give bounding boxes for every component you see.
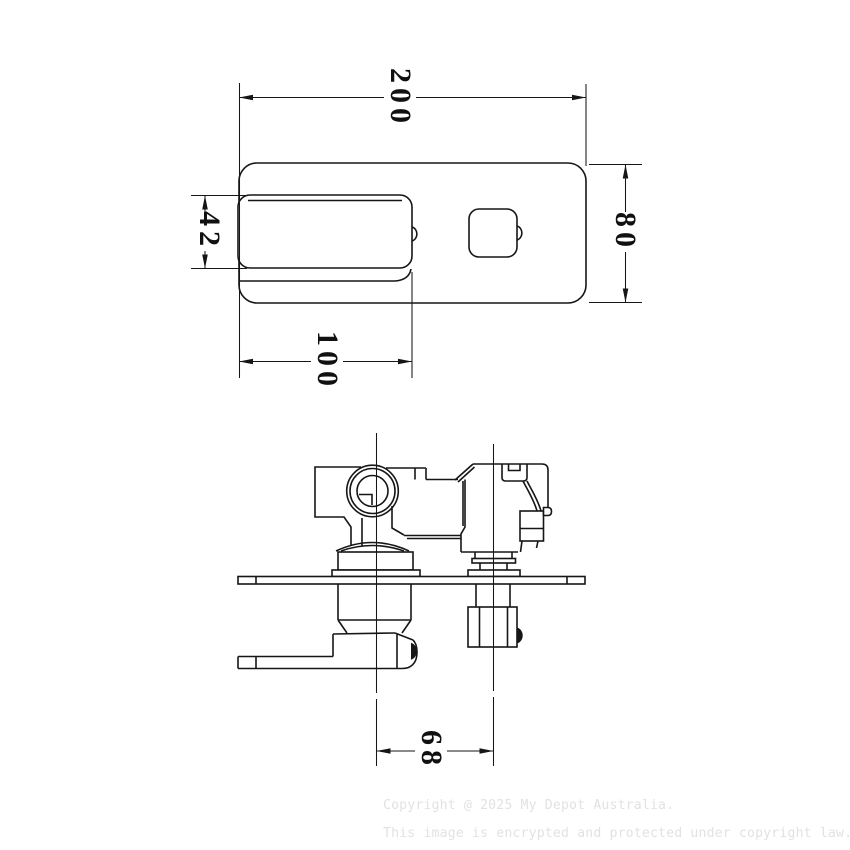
dim-label-overall-height: 80 [609, 212, 641, 252]
dim-label-center-distance: 68 [415, 730, 447, 770]
side-view [238, 433, 585, 766]
watermark-line-1: Copyright @ 2025 My Depot Australia. [383, 798, 674, 813]
mixer-valve-body [315, 465, 461, 576]
inlet-port-outer [347, 465, 399, 517]
watermark-line-2: This image is encrypted and protected un… [383, 826, 850, 841]
diverter-knob [468, 607, 517, 647]
dim-label-handle-height: 42 [193, 211, 225, 251]
diverter-button-outline [469, 209, 517, 257]
escutcheon-band [338, 552, 413, 570]
diverter-side-flag [544, 508, 552, 516]
dim-label-overall-width: 200 [384, 68, 416, 128]
diverter-knob-assembly [468, 584, 522, 647]
handle-lever-outline [238, 195, 412, 268]
diverter-side-box [520, 511, 544, 541]
technical-drawing-page: 200 42 80 100 68 Copyright @ 2025 My Dep… [0, 0, 850, 850]
handle-lever-assembly [238, 584, 417, 669]
wall-plate [238, 577, 585, 585]
drawing-canvas [0, 0, 850, 850]
diverter-body [455, 464, 552, 577]
dim-label-handle-length: 100 [311, 331, 343, 391]
knob-side-nub [517, 628, 522, 643]
